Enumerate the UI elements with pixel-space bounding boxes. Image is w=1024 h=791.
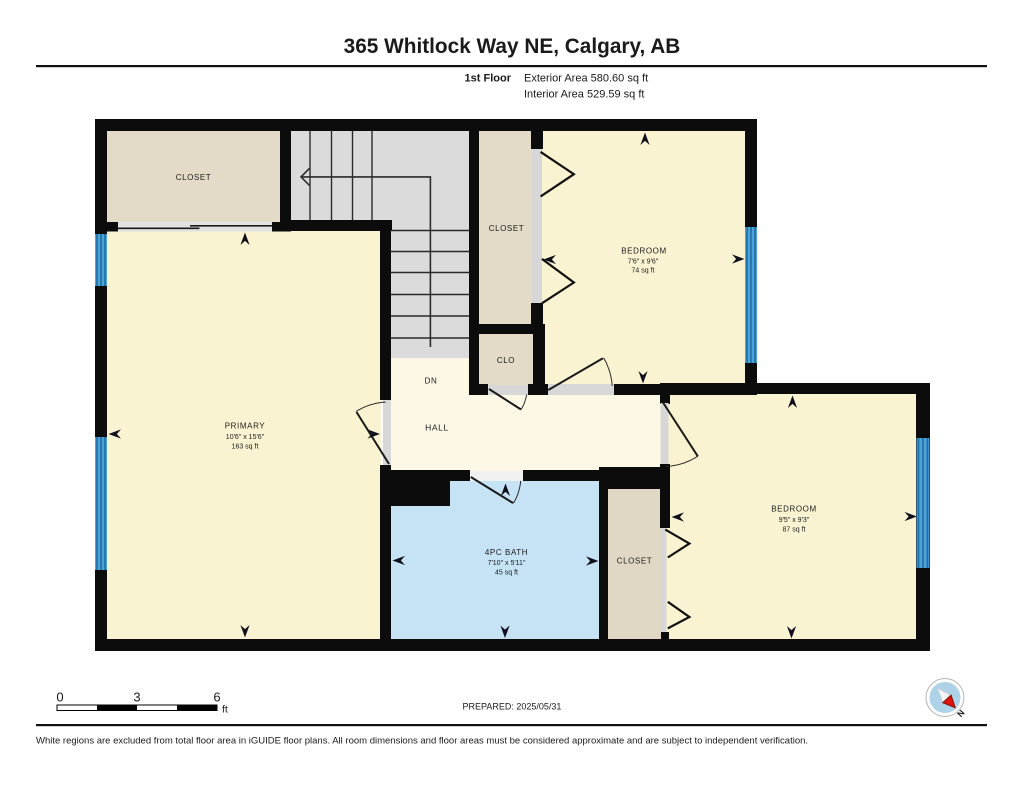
svg-text:87 sq ft: 87 sq ft [783, 527, 806, 534]
svg-text:CLOSET: CLOSET [176, 173, 212, 182]
svg-text:1st Floor: 1st Floor [465, 73, 512, 85]
svg-text:White regions are excluded fro: White regions are excluded from total fl… [36, 736, 808, 747]
svg-text:9'5" x 9'3": 9'5" x 9'3" [779, 517, 810, 524]
svg-text:CLOSET: CLOSET [617, 557, 653, 566]
svg-text:45 sq ft: 45 sq ft [495, 570, 518, 577]
svg-text:CLO: CLO [497, 356, 515, 365]
svg-text:BEDROOM: BEDROOM [771, 505, 817, 514]
svg-text:6: 6 [213, 690, 220, 705]
svg-text:0: 0 [56, 690, 63, 705]
svg-text:Exterior Area 580.60 sq ft: Exterior Area 580.60 sq ft [524, 73, 648, 85]
svg-text:HALL: HALL [425, 423, 449, 433]
svg-text:BEDROOM: BEDROOM [621, 247, 667, 256]
svg-text:7'6" x 9'6": 7'6" x 9'6" [628, 259, 659, 266]
svg-text:Interior Area 529.59 sq ft: Interior Area 529.59 sq ft [524, 89, 644, 101]
svg-text:74 sq ft: 74 sq ft [632, 268, 655, 275]
svg-text:4PC BATH: 4PC BATH [485, 548, 528, 557]
svg-text:3: 3 [133, 690, 140, 705]
svg-text:7'10" x 5'11": 7'10" x 5'11" [488, 560, 526, 567]
svg-text:163 sq ft: 163 sq ft [232, 444, 259, 451]
svg-text:ft: ft [222, 704, 228, 716]
svg-text:DN: DN [425, 377, 438, 386]
svg-text:CLOSET: CLOSET [489, 224, 525, 233]
svg-text:10'6" x 15'6": 10'6" x 15'6" [226, 434, 265, 441]
svg-text:PREPARED: 2025/05/31: PREPARED: 2025/05/31 [463, 702, 562, 712]
svg-text:PRIMARY: PRIMARY [225, 422, 266, 431]
svg-text:365 Whitlock Way NE, Calgary,: 365 Whitlock Way NE, Calgary, AB [344, 35, 681, 58]
